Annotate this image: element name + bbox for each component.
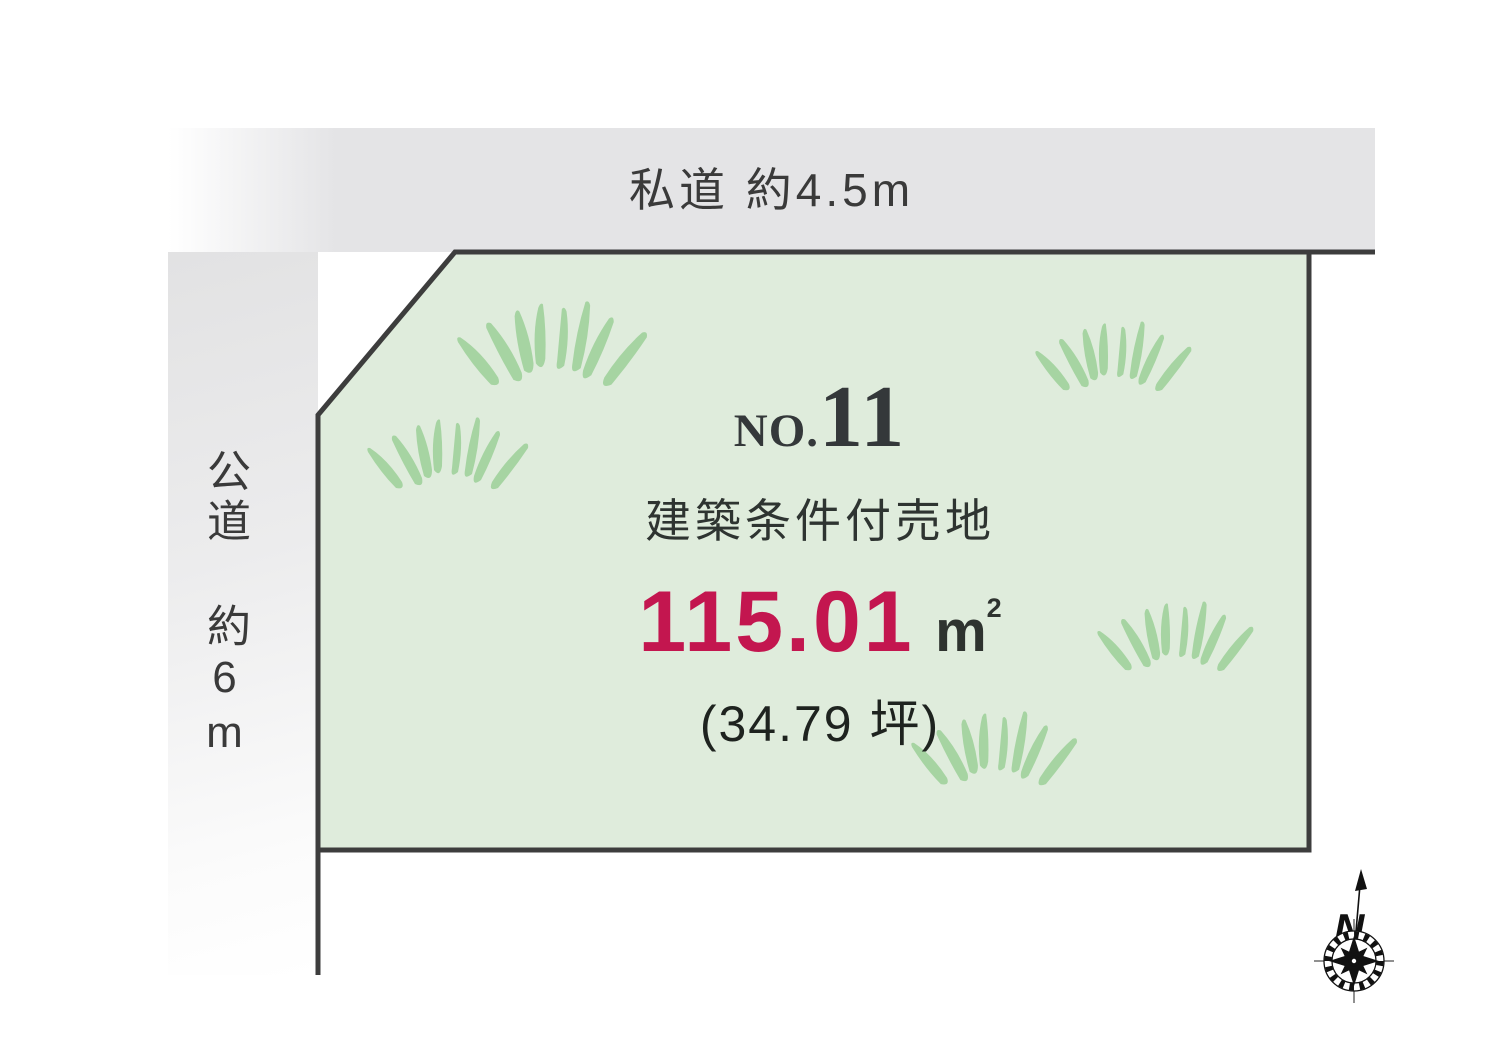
compass-rose: N [1297, 855, 1415, 1050]
plot-area-tsubo: (34.79 坪) [520, 693, 1120, 755]
square-meter-unit: m2 [935, 599, 1002, 664]
plot-number: NO.11 [520, 372, 1120, 488]
plot-number-value: 11 [819, 369, 906, 466]
plot-area: 115.01 m2 [520, 562, 1120, 693]
land-plot-diagram: 私道 約4.5m 公道 約6m [0, 0, 1500, 1060]
plot-info: NO.11 建築条件付売地 115.01 m2 (34.79 坪) [520, 372, 1120, 755]
plot-number-prefix: NO. [734, 405, 819, 457]
plot-category: 建築条件付売地 [520, 492, 1120, 550]
plot-area-sqm: 115.01 [638, 574, 914, 670]
compass-dial [1324, 931, 1384, 991]
